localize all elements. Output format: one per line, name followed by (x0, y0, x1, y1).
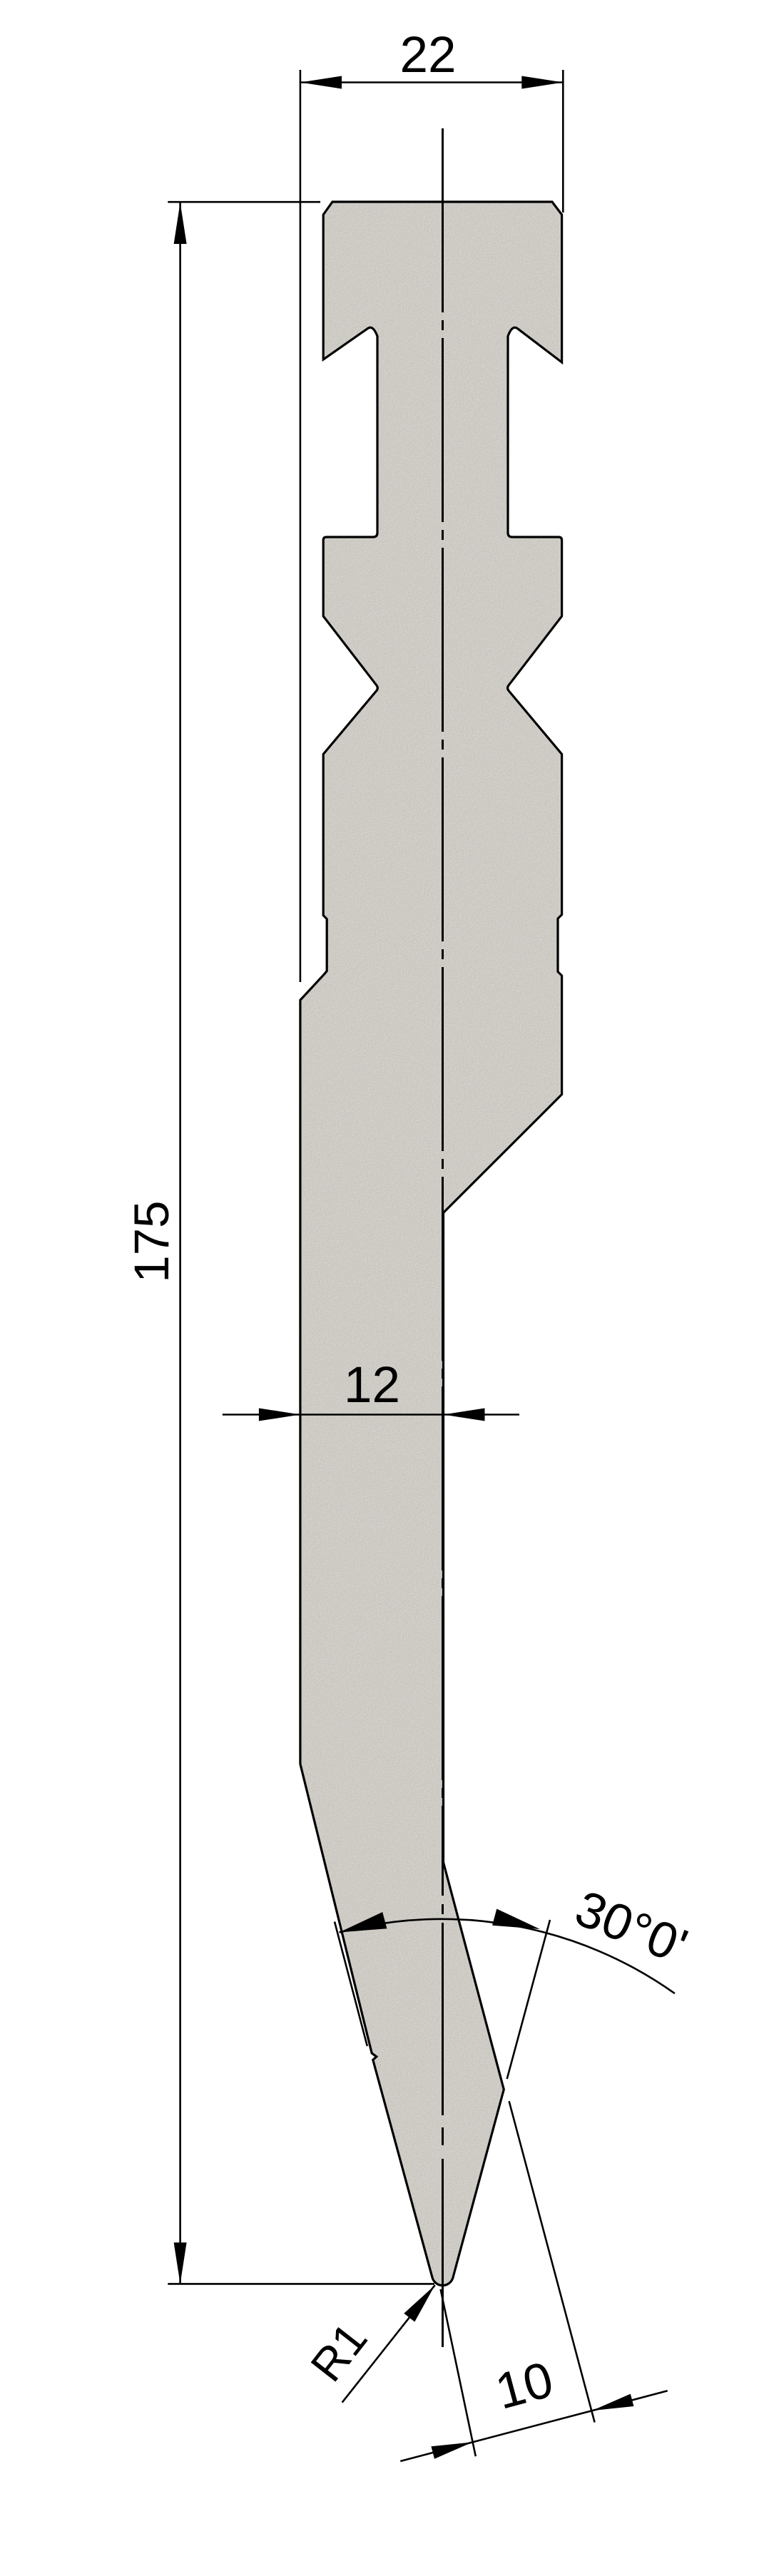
svg-text:12: 12 (344, 1357, 400, 1414)
svg-text:22: 22 (400, 27, 457, 83)
svg-text:30°0': 30°0' (568, 1880, 695, 1975)
svg-text:10: 10 (490, 2351, 559, 2421)
svg-text:R1: R1 (300, 2314, 377, 2391)
svg-text:175: 175 (124, 1200, 179, 1282)
